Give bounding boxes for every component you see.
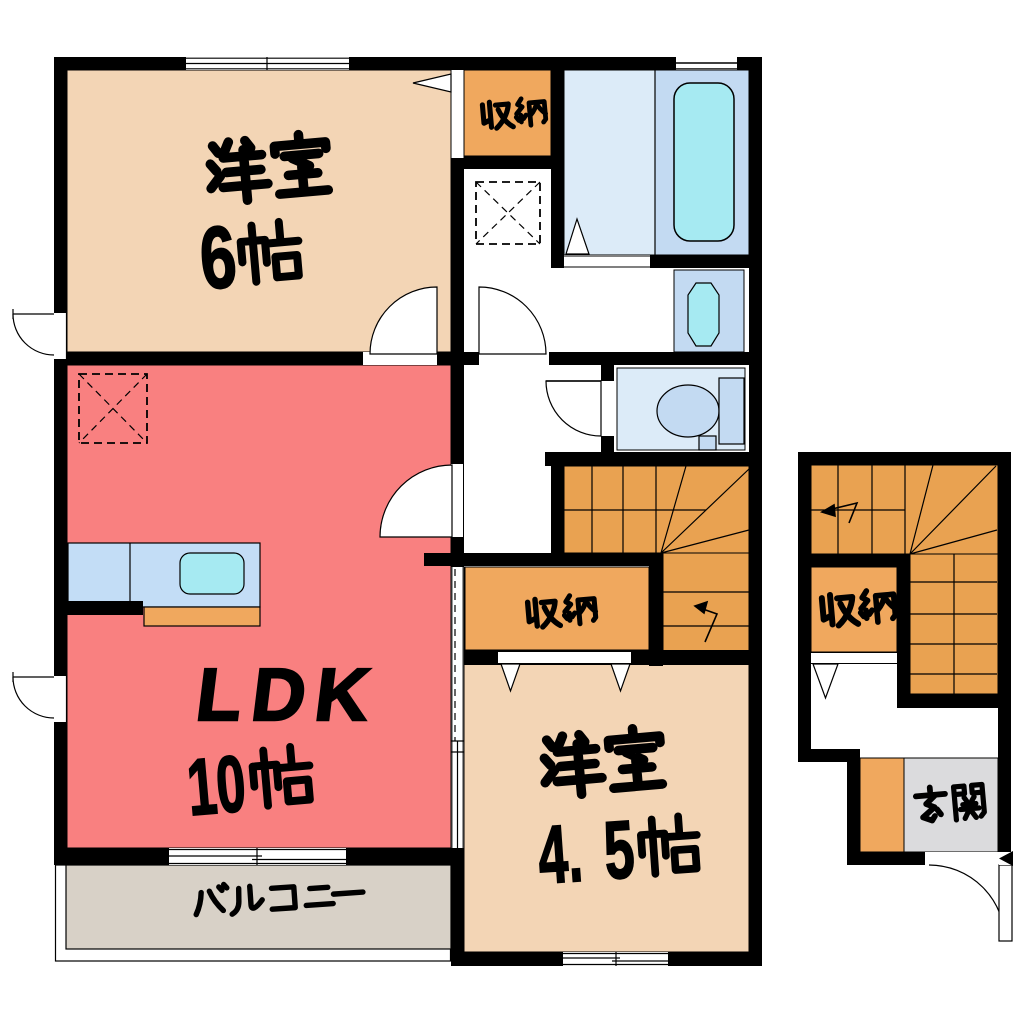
svg-text:4.: 4. (535, 808, 585, 902)
svg-text:5: 5 (601, 804, 637, 897)
svg-text:10: 10 (184, 739, 250, 833)
svg-text:LDK: LDK (192, 653, 384, 736)
